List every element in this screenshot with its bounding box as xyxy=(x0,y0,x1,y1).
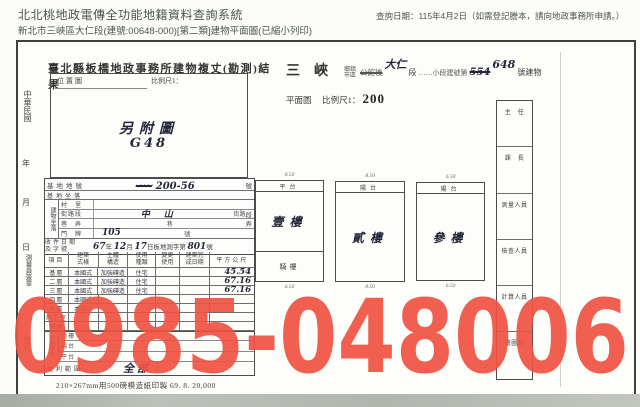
receipt-month-unit: 月 xyxy=(126,244,133,251)
attached-structures-table: 附屬建物 騎樓 陽台 平台 權利範圍 全部 xyxy=(44,331,255,376)
lane-label: 巷 弄 xyxy=(59,219,94,228)
margin-day-label: 日 xyxy=(22,242,30,253)
door-value: 105 xyxy=(102,228,121,238)
dimension-label: 6.50 xyxy=(417,283,484,289)
margin-year-label: 年 xyxy=(22,158,30,169)
plan-unit-main: 貳樓 xyxy=(336,193,404,281)
lane-unit: 弄 xyxy=(246,218,255,228)
strip-label: 陽台 xyxy=(360,183,380,192)
attached-row: 騎樓 xyxy=(59,331,254,341)
door-row: 門 牌 105 號 xyxy=(59,229,254,239)
signer-cell: 主 任 xyxy=(497,101,532,147)
door-label: 門 牌 xyxy=(59,229,94,238)
floor-style: 本國式 xyxy=(74,277,92,286)
floor-row: 五層 本國式 xyxy=(45,304,254,313)
building-number-suffix: 號建物 xyxy=(517,68,541,77)
old-building-number: 554 xyxy=(470,67,491,78)
subsection-unit-label: ……小段建號第 xyxy=(419,69,468,77)
plan-label: 平面圖 xyxy=(286,95,312,105)
floor-area: 45.54 xyxy=(224,268,251,277)
plan-unit-floor1: 8.50 平台 壹樓 騎樓 6.50 xyxy=(255,180,324,282)
floor-area: 67.16 xyxy=(224,286,251,295)
floor-label: 地下室 xyxy=(46,313,67,322)
location-map-scale-label: 比例尺1： xyxy=(151,76,183,86)
header-structure: 主體構造 xyxy=(106,253,120,266)
floor-structure: 加強磚造 xyxy=(101,268,125,277)
plan-unit-main: 參樓 xyxy=(417,194,484,280)
signer-label: 主 任 xyxy=(505,110,525,116)
floor-use: 住宅 xyxy=(136,286,148,295)
signer-label: 測量人員 xyxy=(501,203,527,209)
signer-sidebar: 主 任 課 長 測量人員 檢查人員 計算人員 繪圖員 xyxy=(496,100,533,380)
land-registry-query-page: 北北桃地政電傳全功能地籍資料查詢系統 查詢日期：115年4月2日（如需登記謄本，… xyxy=(0,0,640,407)
lot-number-scribble: 〰〰 xyxy=(136,181,152,191)
location-map-code: G48 xyxy=(51,136,247,151)
attached-row: 陽台 xyxy=(59,341,254,351)
signer-cell: 課 長 xyxy=(497,147,532,193)
print-spec-note: 210×267mm用500磅模造紙印製 69. 8. 20,000 xyxy=(56,380,216,391)
attached-row: 平台 xyxy=(59,352,254,362)
location-map-label: 位置圖 xyxy=(57,76,84,86)
signer-label: 計算人員 xyxy=(501,295,527,301)
lot-number-unit: 號 xyxy=(246,180,255,190)
signer-label: 檢查人員 xyxy=(501,249,527,255)
header-style: 建築式樣 xyxy=(76,253,90,266)
receipt-month: 12 xyxy=(114,242,127,252)
street-row: 街路段 中山 街路 段 xyxy=(59,210,254,220)
floor-row: 四層 本國式 xyxy=(45,295,254,304)
margin-month-label: 月 xyxy=(22,197,30,208)
floor-style: 本國式 xyxy=(74,304,92,313)
building-location-label: 建物坐落 xyxy=(48,207,55,231)
floor-row: 基層 本國式 加強磚造 住宅 45.54 xyxy=(45,268,254,277)
signer-cell: 計算人員 xyxy=(497,286,532,332)
unit-main-label: 參樓 xyxy=(432,229,468,246)
system-title: 北北桃地政電傳全功能地籍資料查詢系統 xyxy=(18,6,243,23)
floor-use: 住宅 xyxy=(136,277,148,286)
floor-use: 住宅 xyxy=(136,268,148,277)
floor-row: 二層 本國式 加強磚造 住宅 67.16 xyxy=(45,277,254,286)
floor-label: 基層 xyxy=(49,268,63,277)
margin-era-label: 中華民國 xyxy=(22,90,33,122)
form-head: 三峽 鄉鎮市區 公館後 大仁 段 ……小段建號第 554 648 號建物 xyxy=(286,60,636,86)
signer-cell: 檢查人員 xyxy=(497,240,532,286)
plan-scale-line: 平面圖 比例尺1： 200 xyxy=(286,91,385,107)
floor-row: 地下室 xyxy=(45,313,254,322)
street-mid-label: 街路 xyxy=(233,209,245,218)
rights-row: 權利範圍 全部 xyxy=(45,362,254,375)
signer-label: 繪圖員 xyxy=(505,341,525,347)
plan-scale-label: 比例尺1： xyxy=(322,95,360,105)
location-map-divider xyxy=(55,88,147,89)
dimension-label: 6.50 xyxy=(417,174,484,180)
section-name-handwritten: 大仁 xyxy=(385,58,407,71)
lot-number-row: 基地地號 〰〰 200-56 號 xyxy=(45,179,254,191)
floor-label: 三層 xyxy=(49,286,63,295)
door-unit: 號 xyxy=(121,228,254,238)
floor-row: 三層 本國式 加強磚造 住宅 67.16 xyxy=(45,286,254,295)
section-unit-label: 段 xyxy=(409,68,417,77)
receipt-office-label: 日板地測字第 xyxy=(147,244,186,251)
location-map-note: 另附圖 xyxy=(51,118,247,138)
floor-structure: 加強磚造 xyxy=(101,277,125,286)
floor-style: 本國式 xyxy=(74,286,92,295)
lane-row: 巷 弄 巷 弄 xyxy=(59,219,254,229)
header-item: 項目 xyxy=(48,255,64,264)
dimension-label: 8.50 xyxy=(336,173,404,179)
floors-table: 項目 建築式樣 主體構造 使用種類 變更使用 建築完成日期 平方公尺 基層 本國… xyxy=(44,252,255,332)
dimension-label: 8.50 xyxy=(336,284,404,290)
floor-label: 五層 xyxy=(49,304,63,313)
plan-unit-bottom: 騎樓 xyxy=(256,251,323,281)
scanned-document: 中華民國 年 月 日 測量員簽章 校正 臺北縣板橋地政事務所建物複丈(勘測)結果… xyxy=(16,40,636,397)
attached-row-label: 陽台 xyxy=(59,341,75,350)
old-section-name: 公館後 xyxy=(360,68,383,77)
floor-label: 騎樓 xyxy=(49,322,63,331)
scan-edge-band xyxy=(0,394,640,407)
attached-row-label: 騎樓 xyxy=(59,331,75,340)
unit-main-label: 貳樓 xyxy=(352,229,388,246)
dimension-label: 6.50 xyxy=(256,284,323,290)
receipt-year-unit: 年 xyxy=(106,244,113,251)
site-seat-label: 基地坐落 xyxy=(45,191,83,200)
floor-row: 騎樓 xyxy=(45,322,254,331)
strip-label: 陽台 xyxy=(440,184,460,193)
receipt-number: 801 xyxy=(187,242,206,252)
plan-unit-strip: 平台 xyxy=(256,181,323,192)
street-unit: 段 xyxy=(246,209,255,219)
margin-surveyor-label: 測量員簽章 xyxy=(22,254,32,287)
street-label: 街路段 xyxy=(59,209,94,218)
signer-cell: 測量人員 xyxy=(497,194,532,240)
floor-style: 本國式 xyxy=(74,295,92,304)
location-map-box: 位置圖 比例尺1： 另附圖 G48 xyxy=(50,73,248,178)
lot-number-value: 200-56 xyxy=(156,181,195,192)
floors-table-header: 項目 建築式樣 主體構造 使用種類 變更使用 建築完成日期 平方公尺 xyxy=(45,252,254,268)
plan-unit-main: 壹樓 xyxy=(256,192,323,251)
receipt-number-unit: 號 xyxy=(206,244,213,251)
receipt-day: 17 xyxy=(134,242,147,252)
building-location-group: 建物坐落 村 里 街路段 中山 街路 段 巷 弄 巷 弄 xyxy=(45,200,254,239)
plan-unit-floor3: 6.50 陽台 參樓 6.50 xyxy=(416,182,485,281)
header-completion-date: 建築完成日期 xyxy=(185,253,205,266)
attached-row-label: 平台 xyxy=(59,352,75,361)
header-use: 使用種類 xyxy=(135,253,149,266)
fold-line xyxy=(560,52,561,387)
header-area: 平方公尺 xyxy=(216,255,248,264)
floor-structure: 加強磚造 xyxy=(101,286,125,295)
header-change-use: 變更使用 xyxy=(160,253,174,266)
unit-main-label: 壹樓 xyxy=(271,213,307,230)
rights-label: 權利範圍 xyxy=(45,364,83,373)
margin-proof-label: 校正 xyxy=(22,336,32,350)
village-label: 村 里 xyxy=(59,200,94,209)
plan-unit-strip: 陽台 xyxy=(417,183,484,194)
floor-label: 二層 xyxy=(49,277,63,286)
strip-label: 平台 xyxy=(279,182,299,191)
floor-label: 四層 xyxy=(49,295,63,304)
plan-unit-strip: 陽台 xyxy=(336,182,404,193)
rights-value: 全部 xyxy=(123,360,151,376)
floor-style: 本國式 xyxy=(74,268,92,277)
dimension-label: 8.50 xyxy=(256,172,323,178)
lane-mid-label: 巷 xyxy=(94,219,246,228)
floor-area: 67.16 xyxy=(224,277,251,286)
query-date-note: 查詢日期：115年4月2日（如需登記謄本，請向地政事務所申請。） xyxy=(376,10,624,22)
town-unit-label: 鄉鎮市區 xyxy=(344,67,358,80)
building-number-handwritten: 648 xyxy=(492,58,515,71)
signer-cell: 繪圖員 xyxy=(497,332,532,378)
unit-bottom-label: 騎樓 xyxy=(280,262,300,272)
town-name: 三峽 xyxy=(286,64,342,79)
plan-unit-floor2: 8.50 陽台 貳樓 8.50 xyxy=(335,181,405,282)
document-subtitle: 新北市三峽區大仁段(建號:00648-000)[第二類]建物平面圖(已縮小列印) xyxy=(18,23,312,37)
attached-group-label: 附屬建物 xyxy=(48,335,54,357)
lot-number-label: 基地地號 xyxy=(45,180,85,190)
plan-scale-value: 200 xyxy=(363,91,386,106)
receipt-year: 67 xyxy=(93,242,106,252)
signer-label: 課 長 xyxy=(505,156,525,162)
site-info-table: 基地地號 〰〰 200-56 號 基地坐落 建物坐落 村 里 街路段 xyxy=(44,178,255,255)
